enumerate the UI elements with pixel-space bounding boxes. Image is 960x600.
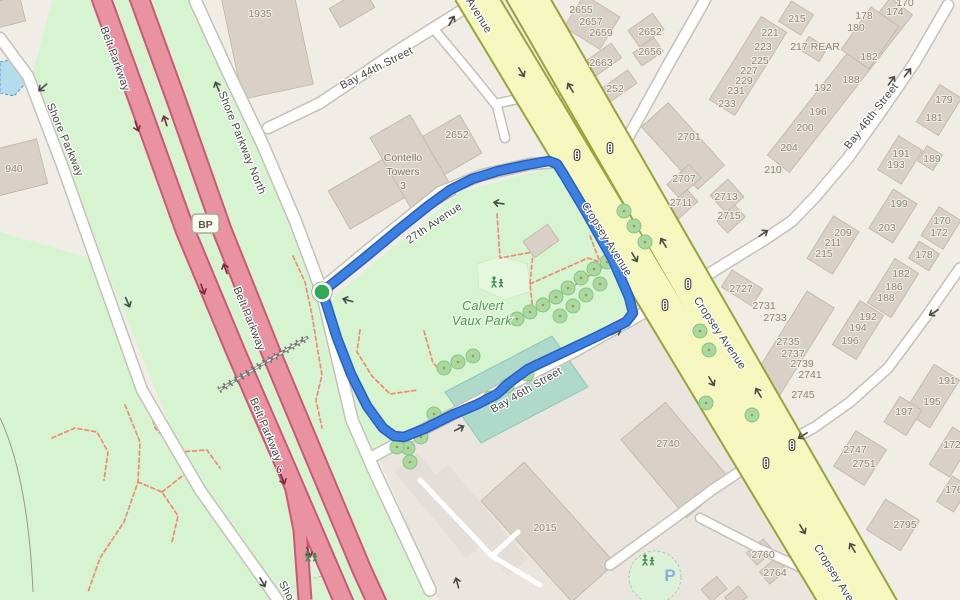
- house-number: 172: [930, 227, 948, 239]
- house-number: 2015: [533, 522, 557, 534]
- house-number: 233: [718, 98, 736, 110]
- bp-shield-text: BP: [198, 219, 213, 231]
- house-number: 2655: [569, 4, 593, 16]
- house-number: 2707: [672, 173, 696, 185]
- house-number: 2715: [717, 210, 741, 222]
- house-number: 197: [895, 406, 913, 418]
- house-number: 188: [842, 74, 860, 86]
- house-number: 2741: [798, 369, 822, 381]
- house-number: 194: [849, 322, 867, 334]
- house-number: 940: [5, 163, 23, 175]
- house-number: 2727: [729, 283, 753, 295]
- route-start-marker[interactable]: [312, 282, 332, 302]
- house-number: 1935: [248, 8, 272, 20]
- house-number: 174: [886, 6, 904, 18]
- house-number: 178: [855, 10, 873, 22]
- house-number: 231: [727, 85, 745, 97]
- bp-route-shield: BP: [192, 214, 219, 233]
- house-number: 2740: [656, 438, 680, 450]
- house-number: 210: [764, 164, 782, 176]
- house-number: 223: [754, 41, 772, 53]
- house-number: 191: [938, 375, 956, 387]
- park-name-line2: Vaux Park: [452, 314, 512, 328]
- house-number: 203: [878, 222, 896, 234]
- house-number: 195: [923, 396, 941, 408]
- house-number: 189: [923, 153, 941, 165]
- house-number: 182: [892, 268, 910, 280]
- house-number: 221: [761, 27, 779, 39]
- house-number: 2733: [763, 312, 787, 324]
- house-number: 182: [860, 51, 878, 63]
- house-number: 181: [925, 112, 943, 124]
- map-canvas[interactable]: BP 6 P Shore Parkway Shore Parkway Shore…: [0, 0, 960, 600]
- house-number: 2751: [852, 458, 876, 470]
- house-number: 176: [945, 484, 960, 496]
- contello-towers-line3: 3: [400, 180, 406, 192]
- house-number: 2764: [763, 567, 787, 579]
- house-number: 2795: [893, 519, 917, 531]
- house-number: 2656: [638, 46, 662, 58]
- house-number: 2652: [445, 129, 469, 141]
- motorway-exit-number: 6: [276, 462, 282, 476]
- contello-towers-line1: Contello: [384, 152, 423, 164]
- house-number: 2659: [589, 27, 613, 39]
- house-number: 178: [915, 249, 933, 261]
- parking-symbol: P: [664, 566, 675, 585]
- house-number: 192: [814, 82, 832, 94]
- house-number: 2663: [589, 57, 613, 69]
- house-number: 2760: [751, 549, 775, 561]
- park-name-line1: Calvert: [462, 299, 504, 313]
- house-number: 215: [815, 248, 833, 260]
- house-number: 204: [780, 142, 798, 154]
- house-number: 2711: [670, 197, 693, 209]
- house-number: 199: [890, 198, 908, 210]
- house-number: 215: [788, 13, 806, 25]
- house-number: 170: [933, 215, 951, 227]
- house-number: 179: [935, 94, 953, 106]
- house-number: 172: [943, 439, 960, 451]
- house-number: 217 REAR: [790, 41, 840, 53]
- house-number: 193: [887, 159, 905, 171]
- house-number: 2701: [677, 131, 701, 143]
- house-number: 196: [841, 335, 859, 347]
- contello-towers-line2: Towers: [386, 166, 419, 178]
- house-number: 2745: [791, 389, 815, 401]
- house-number: 2735: [776, 336, 800, 348]
- house-number: 2652: [638, 26, 662, 38]
- house-number: 2747: [843, 444, 867, 456]
- house-number: 2713: [714, 191, 738, 203]
- house-number: 188: [877, 292, 895, 304]
- house-number: 200: [796, 122, 814, 134]
- house-number: 196: [809, 106, 827, 118]
- house-number: 252: [606, 83, 624, 95]
- house-number: 180: [847, 22, 865, 34]
- house-number: 2731: [752, 300, 776, 312]
